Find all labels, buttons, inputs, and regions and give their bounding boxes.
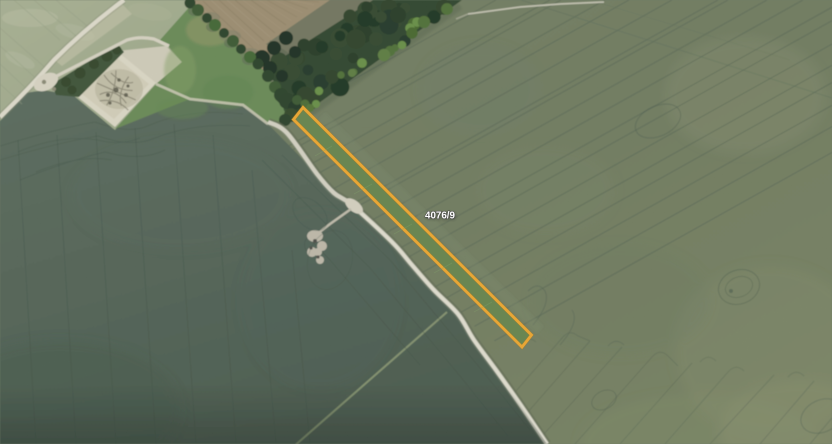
svg-text:4076/9: 4076/9 bbox=[425, 211, 456, 222]
